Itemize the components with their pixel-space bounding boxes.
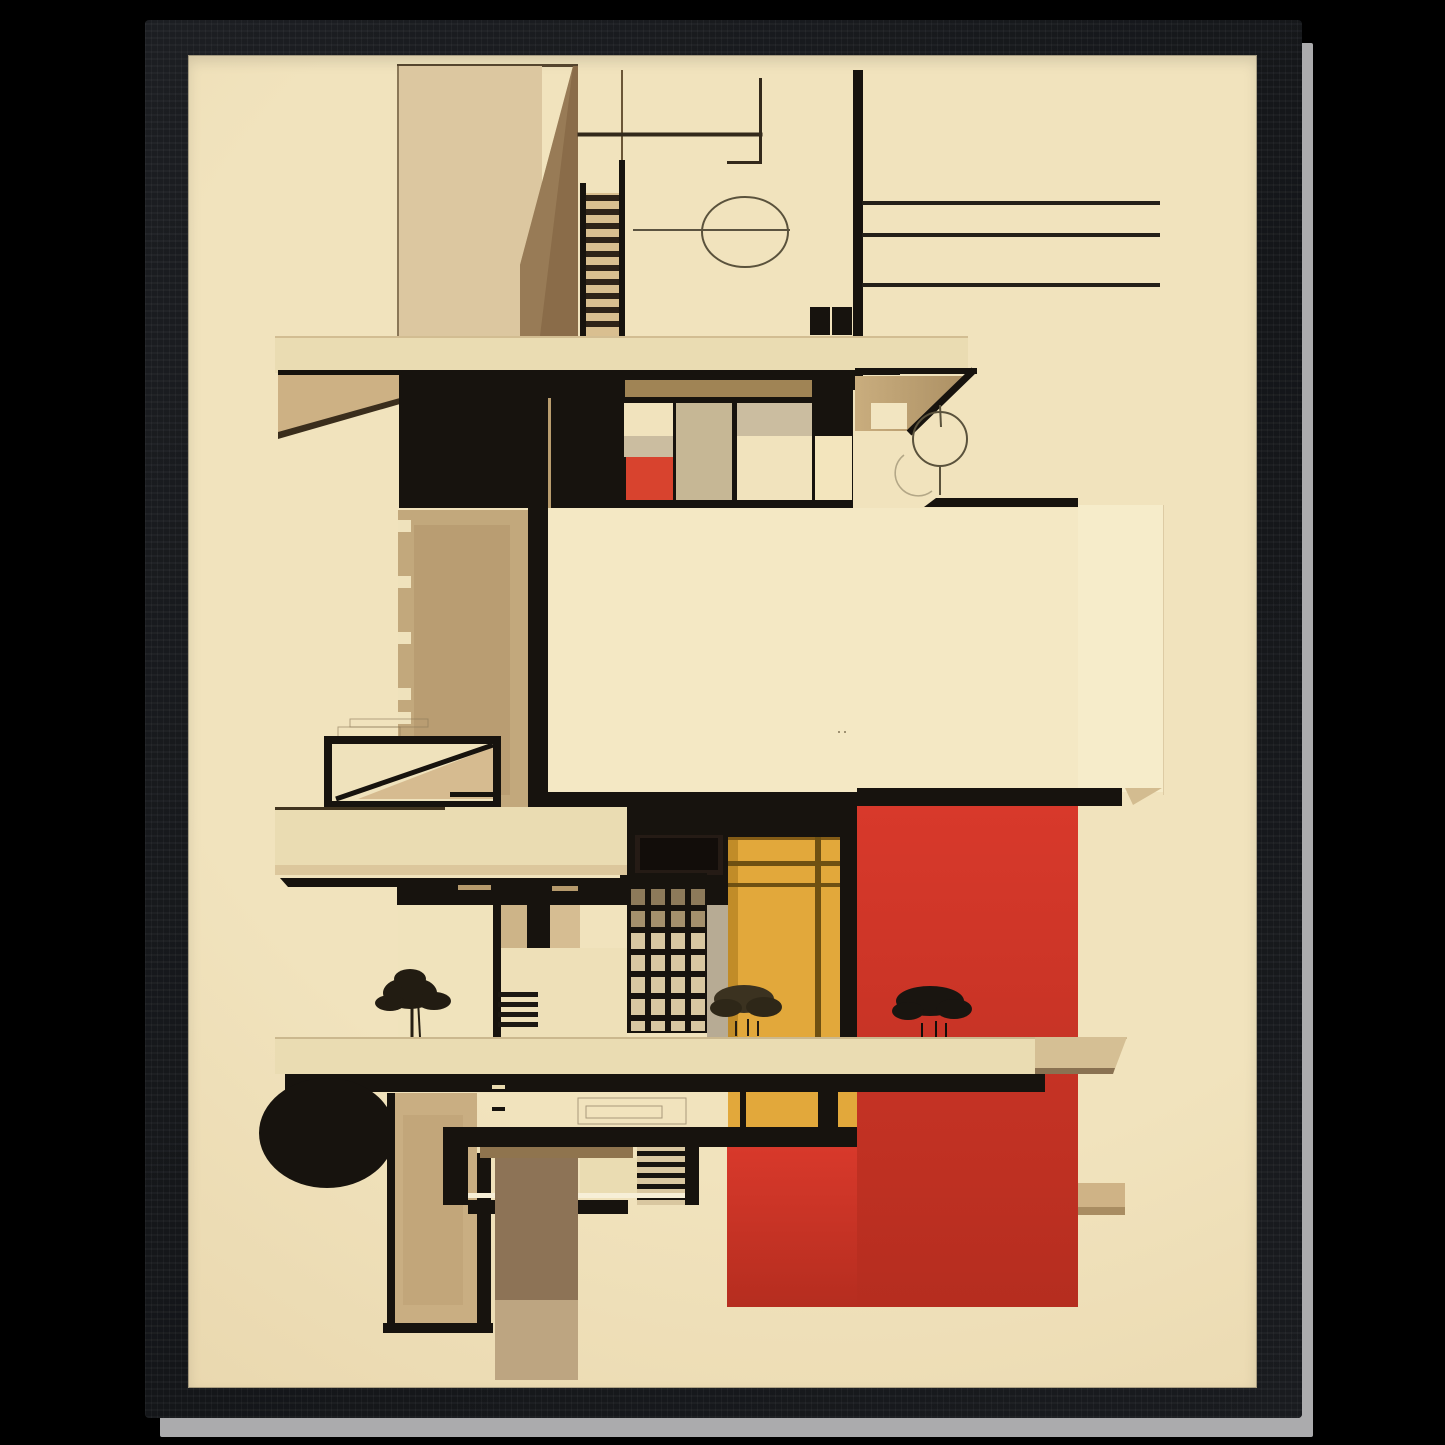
right-horizontal-lines — [862, 201, 1160, 287]
panel-corner-fold — [1125, 788, 1162, 805]
bench-leg — [443, 1147, 468, 1205]
artwork-canvas — [188, 55, 1257, 1388]
sketch-rects — [578, 1098, 686, 1124]
upper-wall-left-line — [397, 66, 399, 336]
balcony-slab — [275, 807, 627, 875]
black-vertical-strip — [528, 373, 548, 792]
poster-mockup-scene — [0, 0, 1445, 1445]
tapered-ledge-bar — [924, 498, 1078, 507]
slab-underside-shadow — [285, 1074, 1045, 1092]
balcony-shadow — [280, 878, 397, 887]
bench-top-bar — [443, 1127, 857, 1147]
thin-tan-post — [548, 398, 551, 508]
right-roof-wedge — [855, 368, 977, 433]
gray-pillar — [707, 905, 728, 1037]
ellipse-motif — [702, 197, 788, 267]
brown-column-upper — [495, 1158, 578, 1300]
red-window-pane — [626, 457, 673, 500]
tan-tab — [1078, 1183, 1125, 1215]
stairs-motif — [580, 160, 625, 336]
poster-artwork — [188, 55, 1257, 1388]
black-wood-frame — [145, 20, 1302, 1418]
twin-black-squares — [810, 307, 852, 335]
black-circle — [259, 1078, 395, 1188]
right-facade-panel — [1078, 505, 1163, 792]
roof-slab — [275, 336, 968, 373]
window-header-beam — [625, 380, 812, 397]
large-facade-panel — [548, 508, 1078, 792]
brown-column-lower — [495, 1300, 578, 1380]
red-lower-block — [727, 1147, 857, 1307]
left-balcony — [275, 807, 627, 1037]
